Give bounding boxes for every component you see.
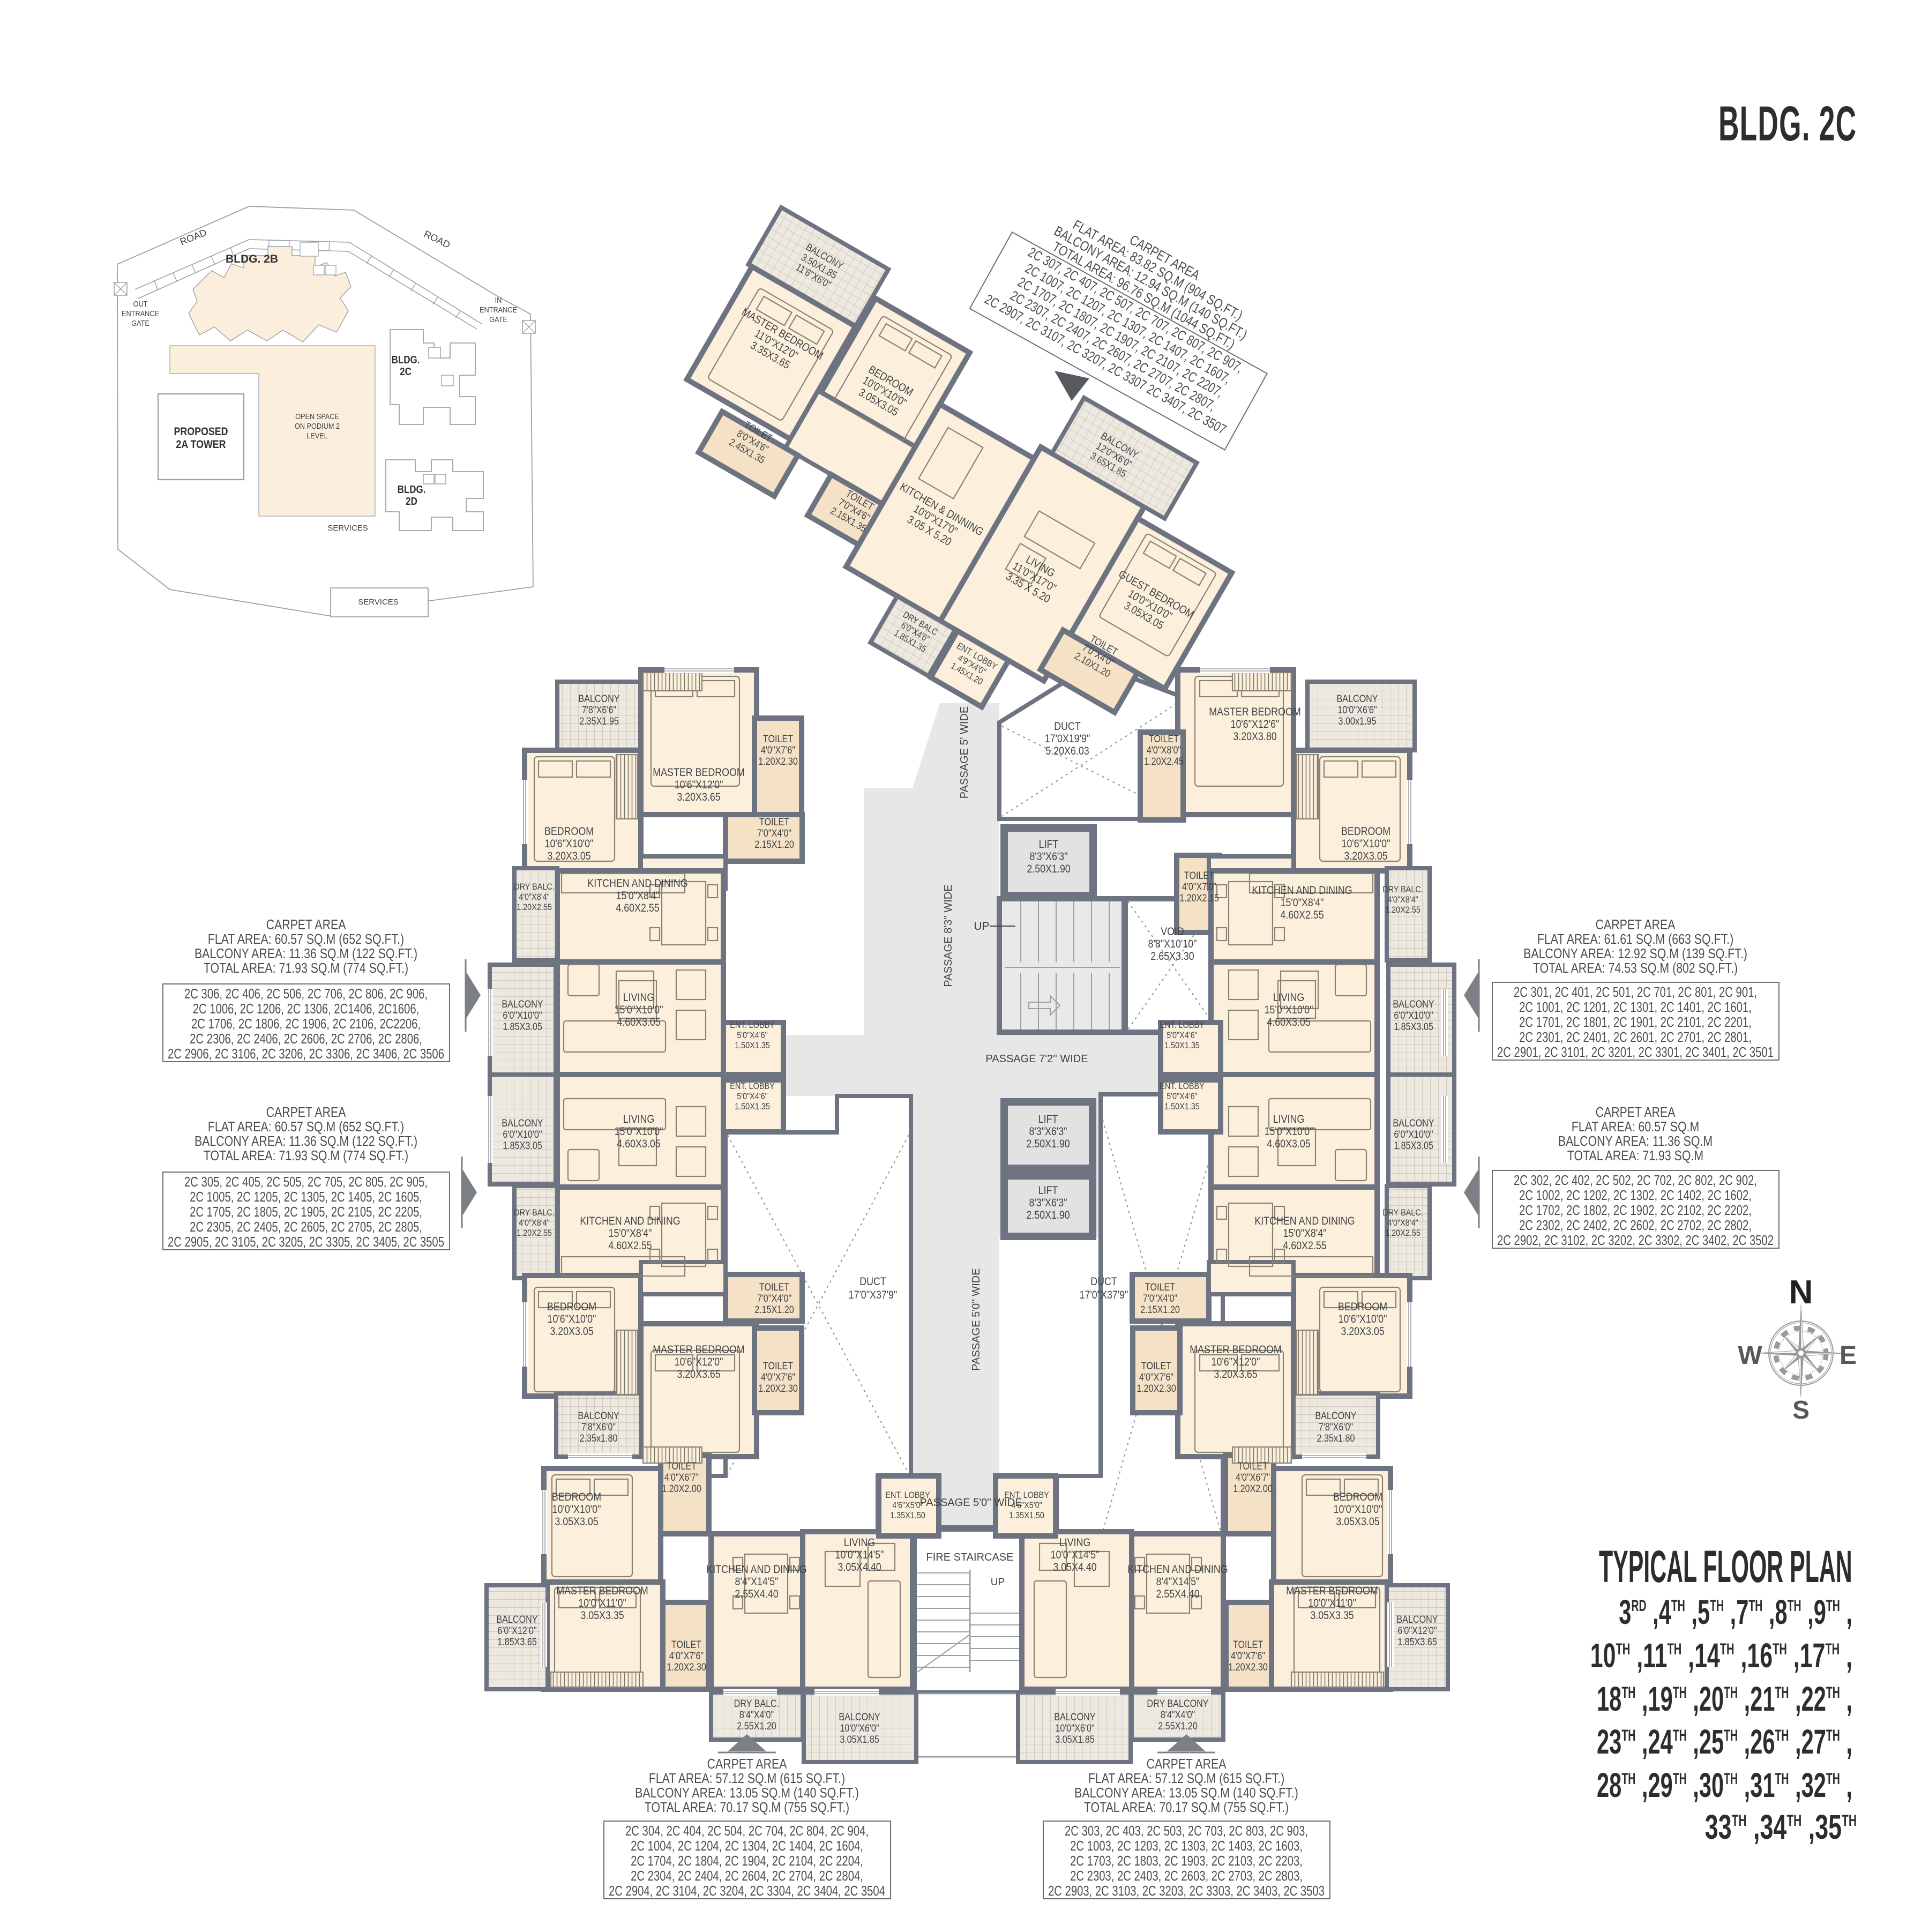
svg-text:DRY BALC.4'0"X8'4"1.20X2.55: DRY BALC.4'0"X8'4"1.20X2.55: [514, 1208, 555, 1238]
svg-text:TOILET4'0"X7'6"1.20X2.30: TOILET4'0"X7'6"1.20X2.30: [667, 1639, 706, 1673]
svg-text:UP: UP: [974, 920, 989, 933]
svg-text:TOILET4'0"X7'0"1.20X2.15: TOILET4'0"X7'0"1.20X2.15: [1179, 870, 1219, 904]
svg-text:BALCONY7'8"X6'6"2.35X1.95: BALCONY7'8"X6'6"2.35X1.95: [578, 693, 619, 727]
svg-text:BEDROOM10'6"X10'0"3.20X3.05: BEDROOM10'6"X10'0"3.20X3.05: [547, 1301, 596, 1338]
svg-text:BEDROOM10'6"X10'0"3.20X3.05: BEDROOM10'6"X10'0"3.20X3.05: [544, 825, 594, 863]
svg-text:BALCONY10'0"X6'6"3.00x1.95: BALCONY10'0"X6'6"3.00x1.95: [1336, 693, 1378, 727]
svg-text:TOILET4'0"X6'7"1.20X2.00: TOILET4'0"X6'7"1.20X2.00: [1233, 1460, 1273, 1495]
svg-text:BLDG. 2C: BLDG. 2C: [1718, 96, 1857, 151]
svg-text:TOILET4'0"X6'7"1.20X2.00: TOILET4'0"X6'7"1.20X2.00: [662, 1460, 701, 1495]
svg-text:2C 303, 2C 403, 2C 503, 2C 703: 2C 303, 2C 403, 2C 503, 2C 703, 2C 803, …: [1048, 1823, 1325, 1899]
svg-text:TOILET4'0"X7'6"1.20X2.30: TOILET4'0"X7'6"1.20X2.30: [1137, 1360, 1176, 1394]
svg-text:BALCONY7'8"X6'0"2.35x1.80: BALCONY7'8"X6'0"2.35x1.80: [1315, 1410, 1356, 1444]
svg-text:BLDG. 2B: BLDG. 2B: [226, 253, 278, 265]
svg-text:PASSAGE 5' WIDE: PASSAGE 5' WIDE: [959, 706, 970, 799]
svg-text:BALCONY6'0"X10'0"1.85X3.05: BALCONY6'0"X10'0"1.85X3.05: [502, 1117, 543, 1152]
svg-text:TOILET7'0"X4'0"2.15X1.20: TOILET7'0"X4'0"2.15X1.20: [754, 816, 794, 851]
svg-text:2C 305, 2C 405, 2C 505, 2C 705: 2C 305, 2C 405, 2C 505, 2C 705, 2C 805, …: [168, 1174, 444, 1250]
svg-text:DRY BALC.4'0"X8'4"1.20X2.55: DRY BALC.4'0"X8'4"1.20X2.55: [1382, 1208, 1423, 1238]
svg-text:W: W: [1738, 1341, 1762, 1370]
svg-text:TOILET4'0"X7'6"1.20X2.30: TOILET4'0"X7'6"1.20X2.30: [758, 733, 798, 767]
svg-text:DRY BALC.4'0"X8'4"1.20X2.55: DRY BALC.4'0"X8'4"1.20X2.55: [514, 882, 555, 912]
svg-text:BALCONY6'0"X10'0"1.85X3.05: BALCONY6'0"X10'0"1.85X3.05: [1393, 998, 1434, 1033]
svg-text:TOILET4'0"X7'6"1.20X2.30: TOILET4'0"X7'6"1.20X2.30: [1228, 1639, 1268, 1673]
svg-text:BEDROOM10'0"X10'0"3.05X3.05: BEDROOM10'0"X10'0"3.05X3.05: [1333, 1491, 1382, 1528]
svg-text:SERVICES: SERVICES: [327, 524, 368, 533]
svg-text:2C 304, 2C 404, 2C 504, 2C 704: 2C 304, 2C 404, 2C 504, 2C 704, 2C 804, …: [609, 1823, 885, 1899]
svg-text:UP: UP: [991, 1577, 1005, 1588]
svg-text:TYPICAL FLOOR PLAN: TYPICAL FLOOR PLAN: [1599, 1542, 1852, 1592]
svg-text:33TH ,34TH ,35TH: 33TH ,34TH ,35TH: [1705, 1808, 1857, 1846]
svg-text:PROPOSED2A TOWER: PROPOSED2A TOWER: [174, 426, 228, 451]
svg-text:E: E: [1840, 1341, 1857, 1370]
svg-text:PASSAGE 8'3'' WIDE: PASSAGE 8'3'' WIDE: [943, 884, 954, 987]
svg-text:2C 306, 2C 406, 2C 506, 2C 706: 2C 306, 2C 406, 2C 506, 2C 706, 2C 806, …: [168, 986, 444, 1062]
svg-text:S: S: [1792, 1396, 1810, 1424]
svg-text:BALCONY10'0"X6'0"3.05X1.85: BALCONY10'0"X6'0"3.05X1.85: [839, 1711, 880, 1745]
svg-text:SERVICES: SERVICES: [358, 598, 399, 607]
svg-text:BALCONY6'0"X12'0"1.85X3.65: BALCONY6'0"X12'0"1.85X3.65: [1396, 1614, 1438, 1648]
svg-text:BEDROOM10'6"X10'0"3.20X3.05: BEDROOM10'6"X10'0"3.20X3.05: [1341, 825, 1390, 863]
svg-text:BALCONY6'0"X10'0"1.85X3.05: BALCONY6'0"X10'0"1.85X3.05: [502, 998, 543, 1033]
svg-text:PASSAGE 5'0'' WIDE: PASSAGE 5'0'' WIDE: [919, 1497, 1022, 1509]
svg-text:DRY BALC.8'4"X4'0"2.55X1.20: DRY BALC.8'4"X4'0"2.55X1.20: [734, 1698, 780, 1732]
svg-text:TOILET4'0"X7'6"1.20X2.30: TOILET4'0"X7'6"1.20X2.30: [758, 1360, 798, 1394]
svg-text:PASSAGE 5'0'' WIDE: PASSAGE 5'0'' WIDE: [970, 1268, 982, 1370]
svg-text:TOILET7'0"X4'0"2.15X1.20: TOILET7'0"X4'0"2.15X1.20: [754, 1281, 794, 1316]
svg-text:BALCONY7'8"X6'0"2.35x1.80: BALCONY7'8"X6'0"2.35x1.80: [578, 1410, 619, 1444]
svg-text:2C 302, 2C 402, 2C 502, 2C 702: 2C 302, 2C 402, 2C 502, 2C 702, 2C 802, …: [1497, 1173, 1774, 1248]
svg-text:TOILET7'0"X4'0"2.15X1.20: TOILET7'0"X4'0"2.15X1.20: [1140, 1281, 1180, 1316]
svg-text:BEDROOM10'6"X10'0"3.20X3.05: BEDROOM10'6"X10'0"3.20X3.05: [1338, 1301, 1387, 1338]
svg-text:PASSAGE 7'2'' WIDE: PASSAGE 7'2'' WIDE: [985, 1053, 1088, 1065]
svg-text:N: N: [1789, 1274, 1813, 1311]
svg-text:BALCONY6'0"X10'0"1.85X3.05: BALCONY6'0"X10'0"1.85X3.05: [1393, 1117, 1434, 1152]
svg-text:FIRE STAIRCASE: FIRE STAIRCASE: [926, 1551, 1014, 1563]
svg-text:BALCONY6'0"X12'0"1.85X3.65: BALCONY6'0"X12'0"1.85X3.65: [496, 1614, 537, 1648]
svg-text:3RD ,4TH ,5TH ,7TH ,8TH ,9TH ,: 3RD ,4TH ,5TH ,7TH ,8TH ,9TH ,: [1619, 1593, 1852, 1631]
svg-text:TOILET4'0"X8'0"1.20X2.45: TOILET4'0"X8'0"1.20X2.45: [1144, 733, 1184, 767]
svg-text:2C 301, 2C 401, 2C 501, 2C 701: 2C 301, 2C 401, 2C 501, 2C 701, 2C 801, …: [1497, 984, 1774, 1060]
svg-text:BALCONY10'0"X6'0"3.05X1.85: BALCONY10'0"X6'0"3.05X1.85: [1054, 1711, 1095, 1745]
svg-text:BEDROOM10'0"X10'0"3.05X3.05: BEDROOM10'0"X10'0"3.05X3.05: [552, 1491, 601, 1528]
svg-text:DRY BALC.4'0"X8'4"1.20X2.55: DRY BALC.4'0"X8'4"1.20X2.55: [1382, 885, 1423, 915]
